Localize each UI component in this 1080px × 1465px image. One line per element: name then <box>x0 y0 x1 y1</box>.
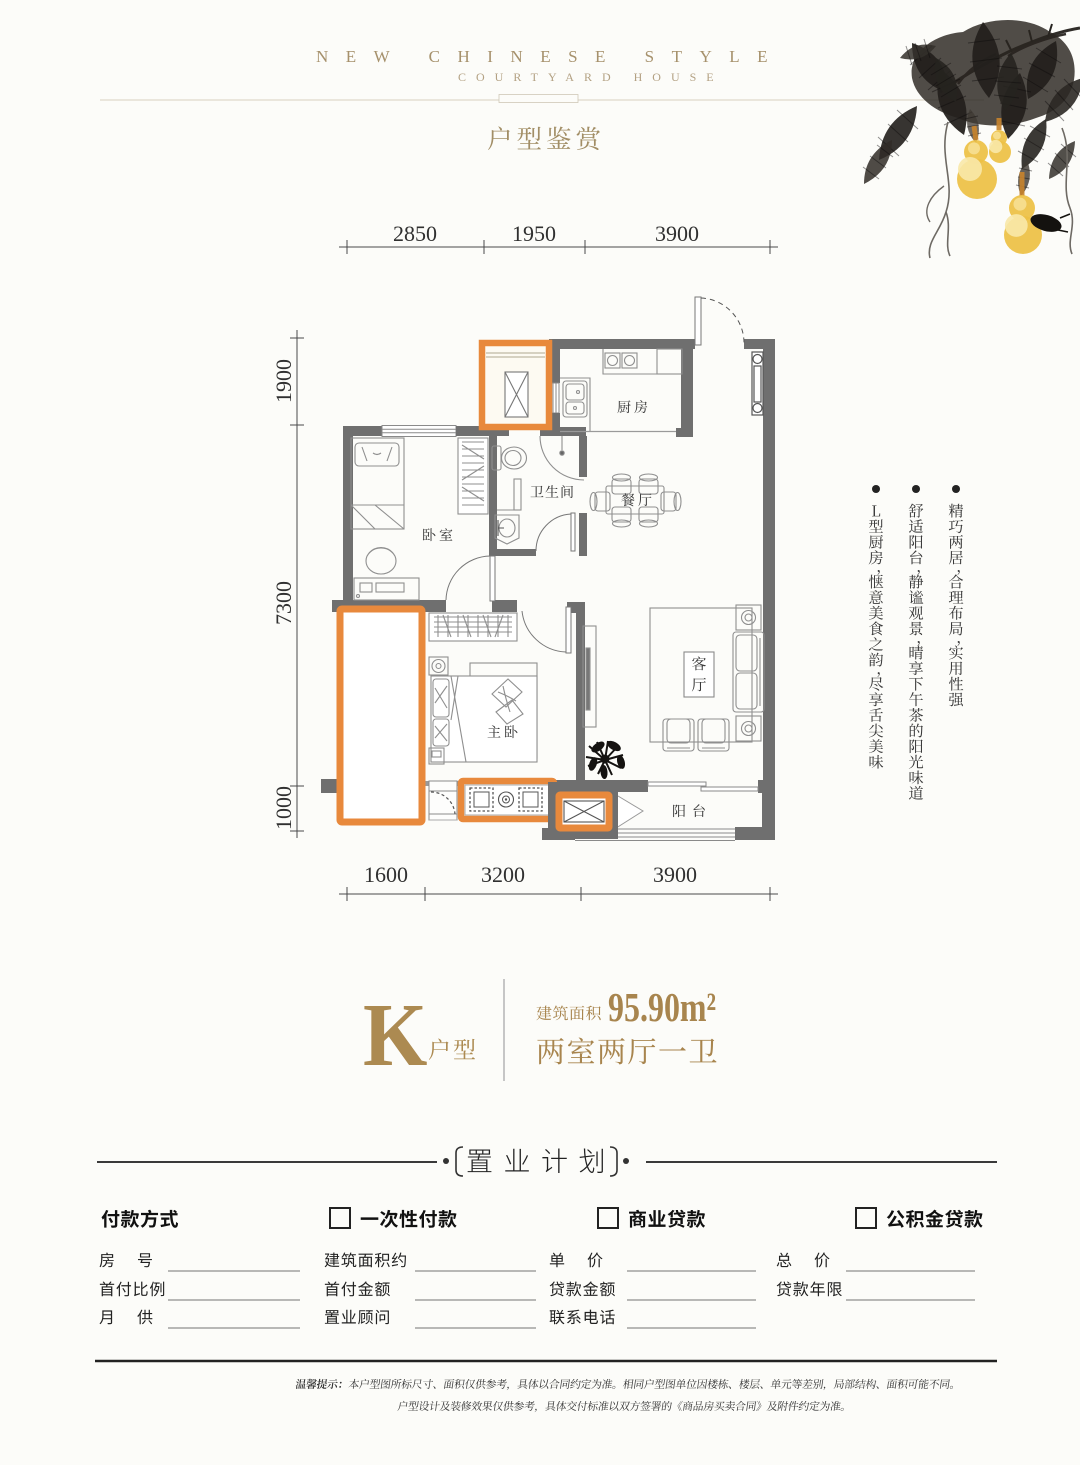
svg-text:COURTYARD HOUSE: COURTYARD HOUSE <box>458 70 724 84</box>
svg-text:1900: 1900 <box>271 359 296 403</box>
svg-text:3900: 3900 <box>655 221 699 246</box>
svg-text:1950: 1950 <box>512 221 556 246</box>
svg-text:1000: 1000 <box>271 786 296 830</box>
svg-text:95.90m²: 95.90m² <box>608 984 716 1030</box>
svg-text:K: K <box>363 985 427 1085</box>
svg-text:NEW CHINESE STYLE: NEW CHINESE STYLE <box>316 47 785 66</box>
svg-text:3900: 3900 <box>653 862 697 887</box>
svg-text:7300: 7300 <box>271 581 296 625</box>
svg-text:3200: 3200 <box>481 862 525 887</box>
svg-text:2850: 2850 <box>393 221 437 246</box>
svg-text:1600: 1600 <box>364 862 408 887</box>
